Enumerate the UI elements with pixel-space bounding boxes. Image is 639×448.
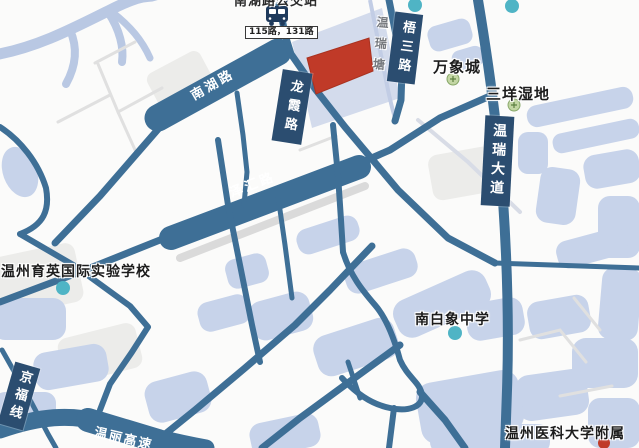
poi-label-medical-university: 温州医科大学附属: [505, 423, 625, 443]
map-layers: [0, 0, 639, 448]
road-exit-s: [389, 408, 394, 448]
poi-label-nanbaixiang-school: 南白象中学: [415, 309, 490, 329]
bus-stop-name-clipped: 南湖路公交站: [234, 0, 318, 9]
poi-label-mixc: 万象城: [433, 56, 481, 77]
teal-dot-unlabeled-2: [505, 0, 519, 13]
poi-label-yuying-school: 温州育英国际实验学校: [1, 261, 151, 281]
map-canvas[interactable]: 南湖路公交站 115路，131路 南湖路 泽汇路 温丽高速 龙霞路 梧三路 温瑞…: [0, 0, 639, 448]
poi-dot-yuying-school: [56, 281, 70, 295]
road-east-branch: [495, 263, 639, 268]
bus-routes-label: 115路，131路: [245, 26, 318, 39]
teal-dot-unlabeled-1: [408, 0, 422, 12]
poi-label-sanyang-wetland: 三垟湿地: [486, 83, 550, 104]
road-nanhu: [55, 112, 174, 243]
road-label-wenrui-avenue: 温瑞大道: [481, 115, 515, 206]
canal-branches: [0, 0, 158, 202]
